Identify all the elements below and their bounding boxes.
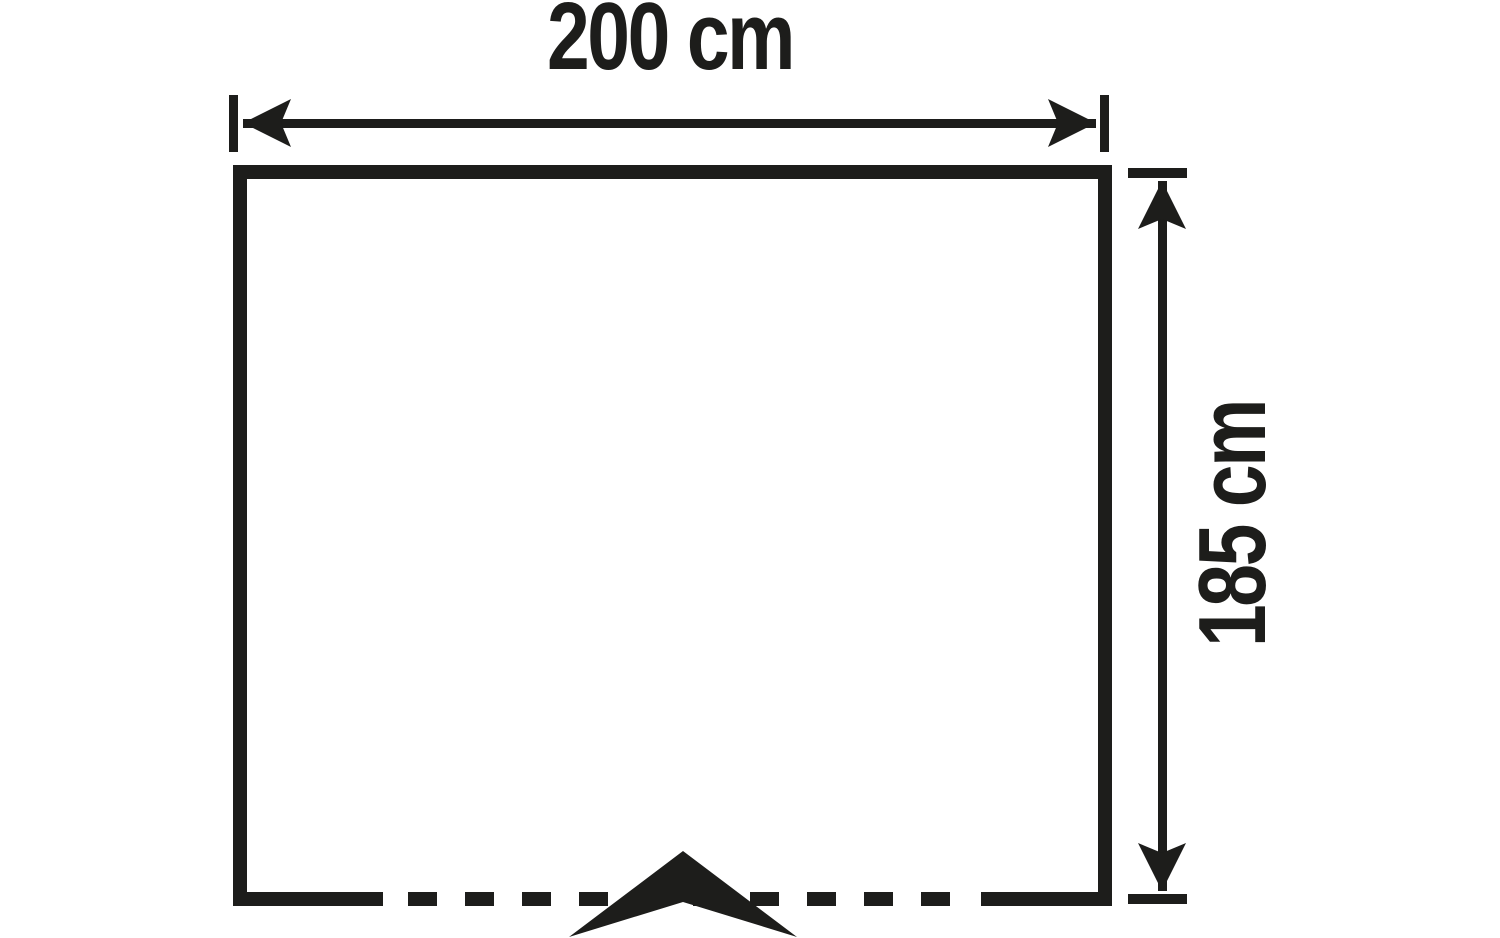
width-dimension-line: [243, 119, 1096, 128]
height-dimension-top-tick: [1128, 168, 1187, 178]
footprint-bottom-left-solid-segment: [233, 892, 383, 906]
footprint-top-edge: [233, 165, 1112, 179]
width-dimension-left-tick: [229, 95, 238, 152]
height-dimension-bottom-tick: [1128, 894, 1187, 904]
dimension-diagram: 200 cm 185 cm: [0, 0, 1500, 938]
footprint-outline: [233, 165, 1112, 906]
height-dimension-line: [1158, 181, 1167, 891]
footprint-bottom-right-solid-segment: [981, 892, 1112, 906]
width-dimension-right-tick: [1100, 95, 1109, 152]
footprint-left-edge: [233, 165, 247, 906]
height-dimension-label: 185 cm: [1181, 324, 1285, 724]
width-dimension: [229, 95, 1109, 152]
footprint-right-edge: [1098, 165, 1112, 906]
width-dimension-label: 200 cm: [470, 0, 870, 92]
